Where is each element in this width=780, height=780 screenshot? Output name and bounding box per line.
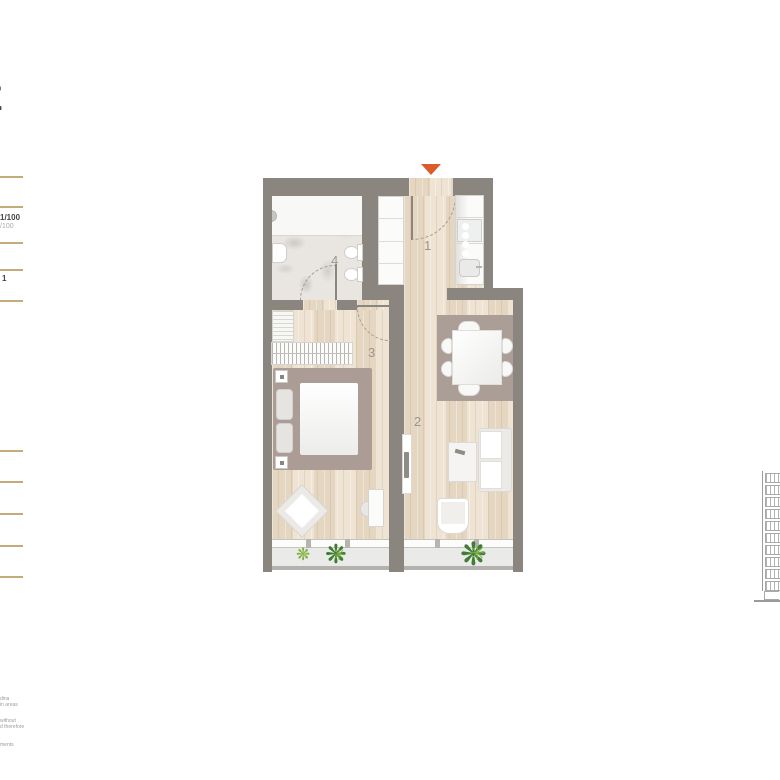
bathroom-door-floor	[303, 300, 337, 310]
legend-rule	[0, 300, 23, 302]
wall-left	[263, 178, 272, 572]
legend-rule	[0, 206, 23, 208]
sofa-cushion	[480, 461, 502, 489]
balcony-right-railing	[404, 566, 513, 570]
wardrobe-hangers	[271, 342, 353, 365]
window-band-right	[404, 539, 513, 548]
elevation-thumbnail	[762, 471, 780, 591]
elevation-window-row	[765, 521, 780, 531]
page-title-fragment: E	[0, 82, 3, 116]
scale-label: 1/100	[0, 213, 20, 222]
elevation-window-row	[765, 545, 780, 555]
legend-rule	[0, 481, 23, 483]
wall-kitchen-bottom	[447, 288, 523, 300]
entry-floor	[409, 178, 453, 196]
legend-rule	[0, 450, 23, 452]
burner-icon	[462, 250, 469, 257]
wall-mid-a	[263, 300, 303, 310]
bidet-tank	[357, 267, 363, 282]
elevation-windows	[763, 473, 780, 591]
room-label-bathroom: 4	[331, 254, 338, 268]
sofa-cushion	[480, 431, 502, 459]
window-mullion	[435, 539, 440, 548]
wall-closet-bottom	[362, 285, 404, 300]
counter-divider	[455, 243, 484, 244]
toilet-tank	[357, 244, 363, 261]
elevation-window-row	[765, 569, 780, 579]
closet-shelf	[378, 263, 404, 264]
balcony-right	[404, 548, 513, 568]
elevation-window-row	[765, 533, 780, 543]
room-label-living: 2	[414, 415, 421, 429]
elevation-ground-line	[754, 600, 780, 602]
legend-rule	[0, 513, 23, 515]
closet-shelf	[378, 241, 404, 242]
elevation-window-row	[765, 485, 780, 495]
disclaimer-line: d therefore	[0, 724, 24, 730]
legend-rule	[0, 545, 23, 547]
elevation-window-row	[765, 497, 780, 507]
kitchen-sink	[459, 259, 480, 277]
entry-arrow-icon	[421, 164, 441, 175]
tv-icon	[404, 452, 409, 478]
elevation-ground-floor	[764, 591, 779, 600]
dining-chair	[458, 384, 480, 396]
bathroom-door	[335, 264, 337, 300]
legend-rule	[0, 242, 23, 244]
armchair-cushion	[441, 502, 465, 524]
elevation-window-row	[765, 581, 780, 591]
legend-rule	[0, 576, 23, 578]
elevation-window-row	[765, 473, 780, 483]
room-label-hall: 1	[424, 239, 431, 253]
elevation-window-row	[765, 509, 780, 519]
coffee-table	[448, 442, 477, 482]
bathroom-sink	[272, 243, 287, 263]
wall-right	[513, 288, 523, 572]
level-label: 1	[2, 274, 6, 283]
room-label-bedroom: 3	[368, 346, 375, 360]
desk	[368, 489, 384, 527]
wall-top-left	[263, 178, 409, 196]
pillow	[276, 423, 293, 453]
dining-chair	[441, 338, 452, 354]
counter-divider	[455, 217, 484, 218]
wall-mid-b	[337, 300, 357, 310]
dining-chair	[441, 361, 452, 377]
cooktop	[457, 219, 482, 242]
floorplan-page: E 1/100 /100 1 dina in areas without d t…	[0, 0, 780, 780]
disclaimer-line: in areas	[0, 702, 18, 708]
legend-rule	[0, 176, 23, 178]
scale-sublabel: /100	[0, 223, 14, 231]
shower-area	[272, 196, 362, 236]
lamp-icon	[280, 461, 284, 465]
legend-rule	[0, 269, 23, 271]
desk-chair	[360, 501, 369, 517]
burner-icon	[462, 223, 469, 230]
dining-table	[452, 330, 502, 385]
faucet-icon	[476, 266, 482, 268]
burner-icon	[462, 241, 469, 248]
pillow	[276, 389, 293, 420]
elevation-window-row	[765, 557, 780, 567]
radiator	[272, 311, 294, 342]
disclaimer-line: ments	[0, 742, 14, 748]
nightstand	[275, 370, 288, 383]
wall-kitchen-right	[484, 178, 493, 300]
lamp-icon	[280, 375, 284, 379]
burner-icon	[462, 232, 469, 239]
closet-shelf	[378, 218, 404, 219]
nightstand	[275, 456, 288, 469]
bed-mattress	[300, 383, 358, 455]
